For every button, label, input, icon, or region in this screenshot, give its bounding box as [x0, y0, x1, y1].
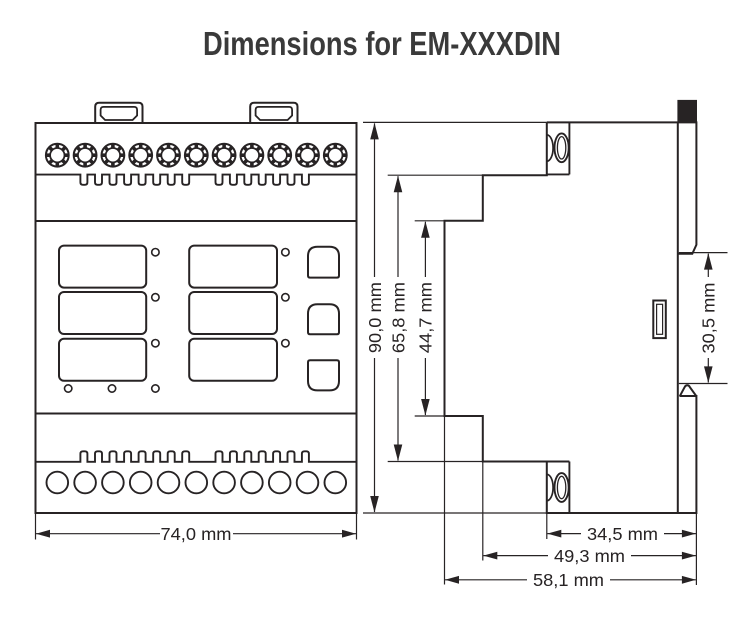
svg-text:90,0 mm: 90,0 mm	[365, 282, 385, 353]
svg-text:34,5 mm: 34,5 mm	[587, 524, 658, 544]
svg-text:30,5 mm: 30,5 mm	[699, 283, 719, 354]
svg-text:65,8 mm: 65,8 mm	[388, 282, 408, 353]
svg-text:49,3 mm: 49,3 mm	[554, 546, 625, 566]
svg-text:Dimensions for EM-XXXDIN: Dimensions for EM-XXXDIN	[203, 26, 561, 63]
svg-text:44,7 mm: 44,7 mm	[416, 282, 436, 353]
svg-text:58,1 mm: 58,1 mm	[533, 570, 604, 590]
svg-text:74,0 mm: 74,0 mm	[161, 524, 232, 544]
